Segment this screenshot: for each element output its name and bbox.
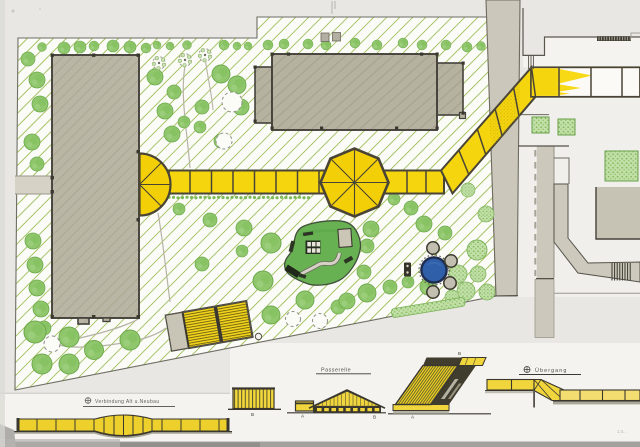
svg-text:Verbindung Alt u.Neubau: Verbindung Alt u.Neubau	[95, 399, 160, 405]
svg-text:1:4..: 1:4..	[617, 429, 626, 434]
svg-text:B: B	[373, 415, 376, 420]
svg-text:Passerelle: Passerelle	[321, 368, 351, 374]
svg-text:Übergang: Übergang	[535, 367, 567, 374]
svg-text:B: B	[251, 412, 254, 417]
svg-text:B: B	[458, 351, 461, 356]
